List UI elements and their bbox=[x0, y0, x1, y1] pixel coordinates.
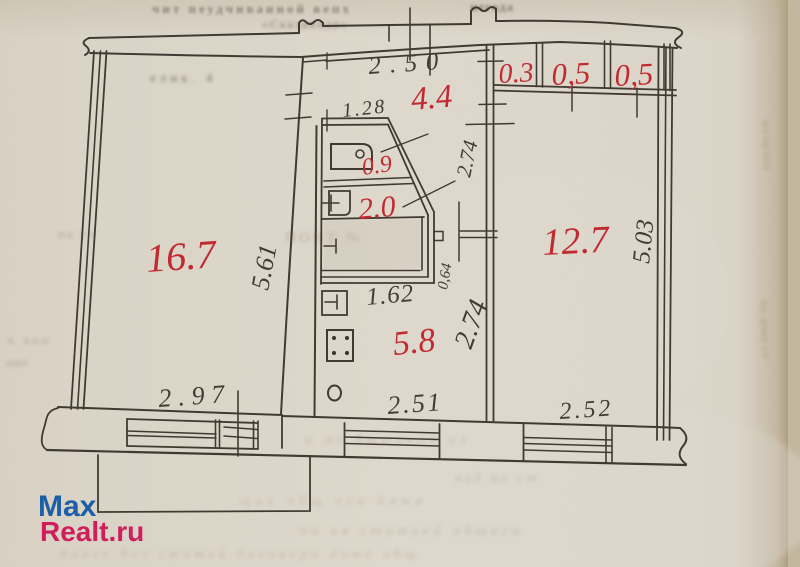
svg-text:Realt.ru: Realt.ru bbox=[40, 516, 144, 547]
svg-text:0.9: 0.9 bbox=[360, 151, 393, 181]
svg-text:чит пеудчиванной вепх: чит пеудчиванной вепх bbox=[152, 1, 352, 16]
svg-text:5.8: 5.8 bbox=[391, 322, 437, 363]
svg-text:4.4: 4.4 bbox=[410, 79, 454, 118]
svg-text:5.03: 5.03 bbox=[628, 218, 659, 264]
svg-text:2.0: 2.0 bbox=[357, 190, 397, 226]
svg-text:далее без статей договора дома: далее без статей договора дома общ bbox=[60, 547, 419, 562]
svg-text:к кон: к кон bbox=[8, 332, 52, 347]
svg-text:щих общ его дома: щих общ его дома bbox=[240, 494, 427, 509]
svg-text:2.97: 2.97 bbox=[157, 379, 226, 413]
svg-text:16.7: 16.7 bbox=[144, 231, 219, 281]
svg-text:0,5: 0,5 bbox=[614, 56, 655, 93]
svg-text:ил на его: ил на его bbox=[759, 120, 776, 170]
svg-text:2.52: 2.52 bbox=[559, 395, 612, 424]
svg-text:1.62: 1.62 bbox=[365, 280, 414, 311]
svg-text:2.51: 2.51 bbox=[386, 387, 441, 420]
svg-text:елик. 4: елик. 4 bbox=[150, 70, 217, 85]
svg-text:и по бытовой ил: и по бытовой ил bbox=[305, 432, 470, 448]
svg-text:12.7: 12.7 bbox=[541, 218, 612, 264]
svg-text:0.3: 0.3 bbox=[498, 57, 535, 90]
svg-text:по кв статьей общего: по кв статьей общего bbox=[300, 523, 523, 539]
svg-text:по дому ст: по дому ст bbox=[757, 300, 774, 360]
svg-text:шил: шил bbox=[6, 355, 28, 369]
svg-text:«Сказанная»: «Сказанная» bbox=[262, 17, 349, 31]
svg-text:0,5: 0,5 bbox=[551, 55, 592, 92]
svg-text:на уч: на уч bbox=[58, 226, 97, 241]
svg-text:1.28: 1.28 bbox=[341, 96, 385, 122]
svg-text:нед по ст: нед по ст bbox=[455, 471, 539, 486]
